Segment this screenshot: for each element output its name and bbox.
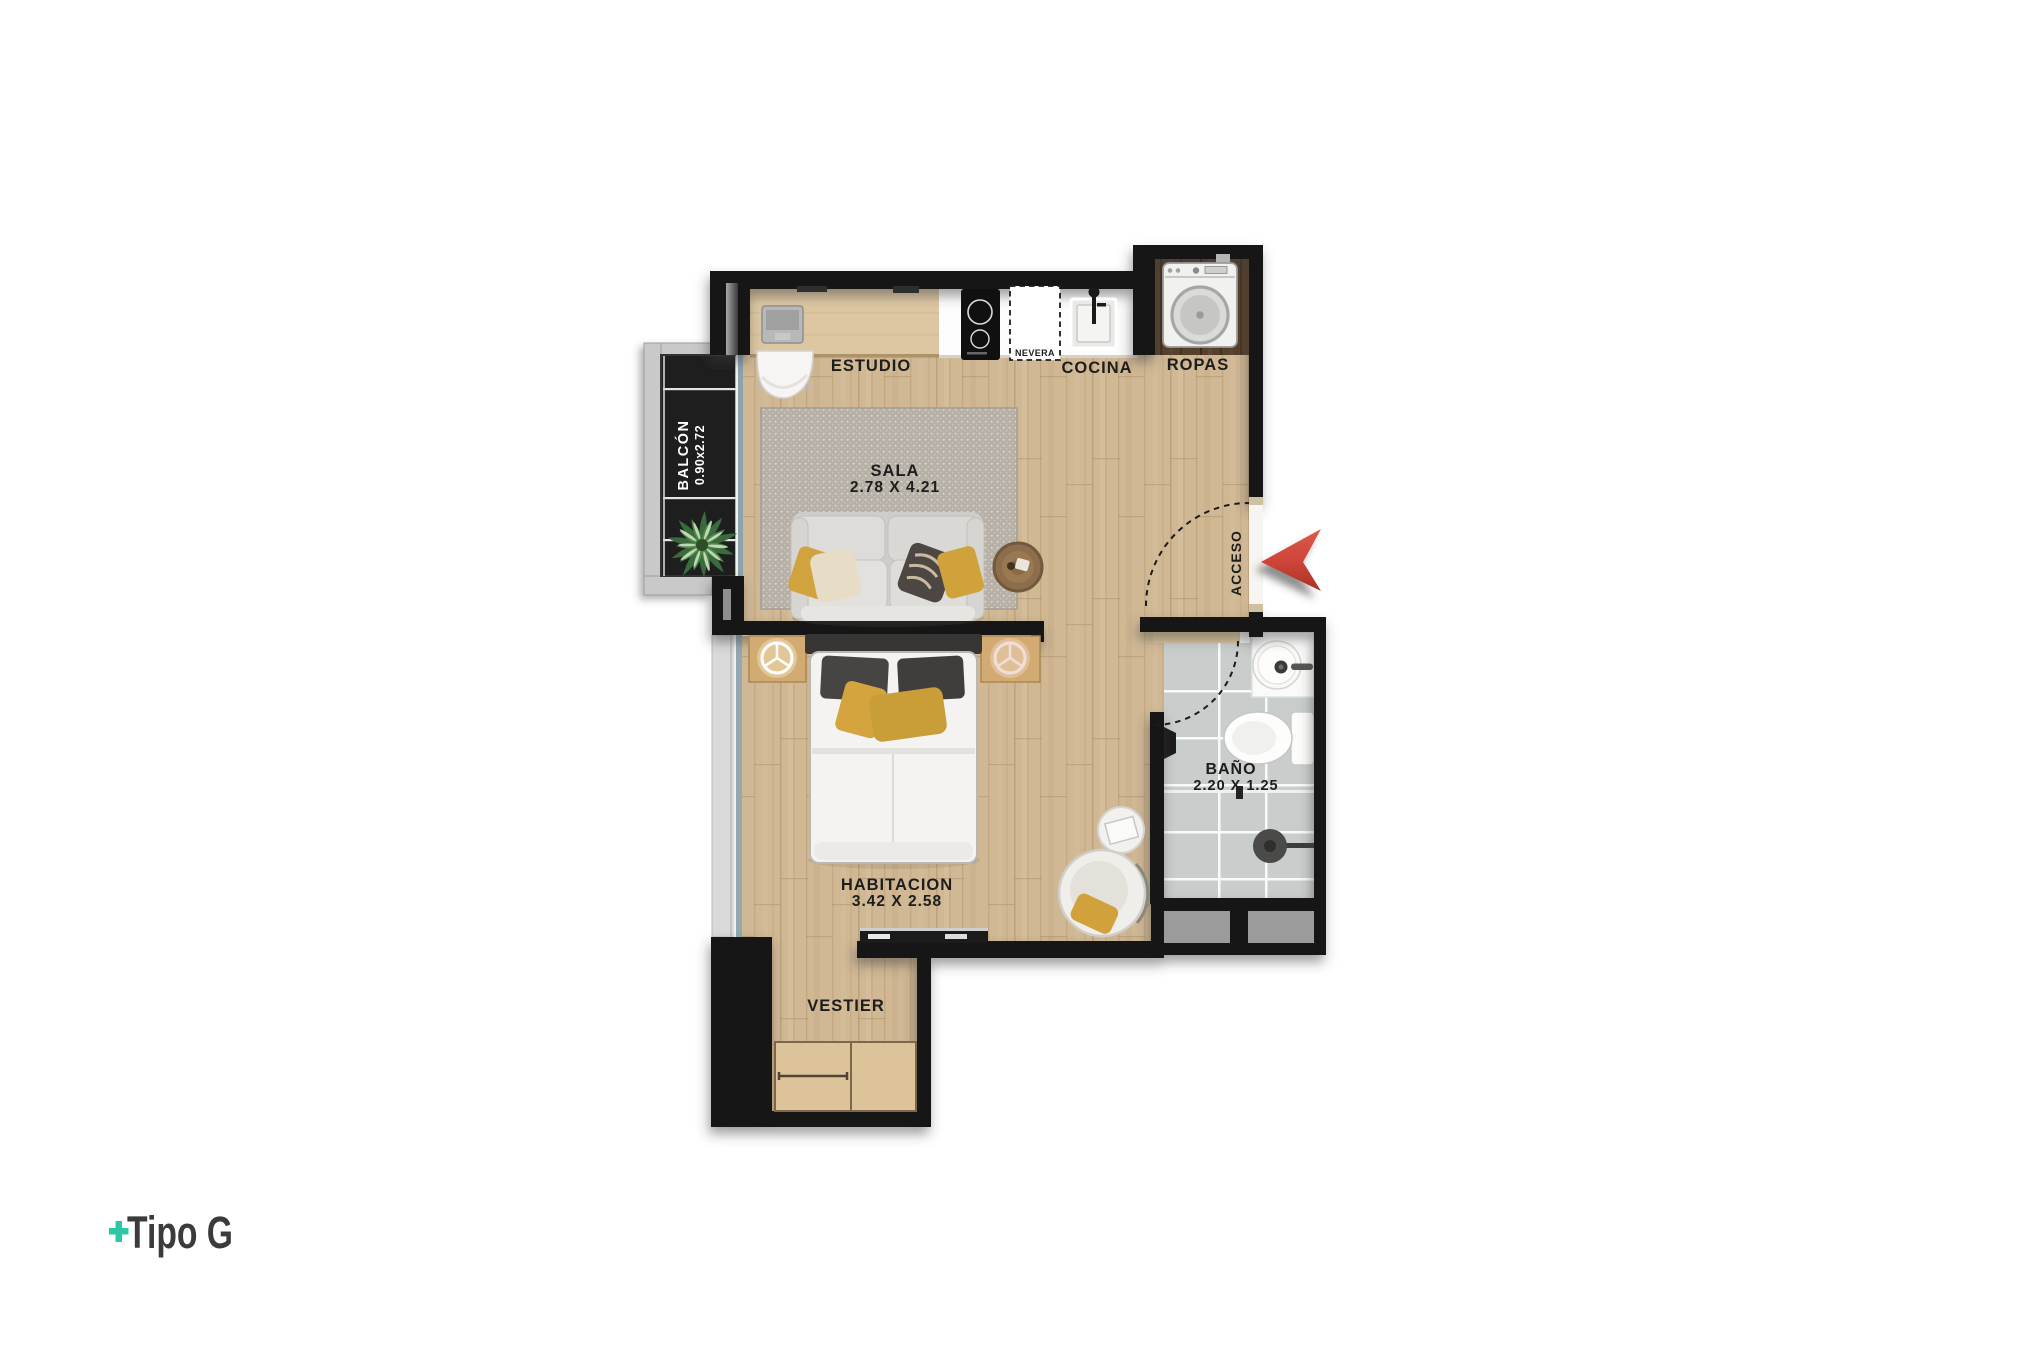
svg-text:2.20 X 1.25: 2.20 X 1.25 xyxy=(1193,778,1278,794)
svg-text:HABITACION: HABITACION xyxy=(841,876,953,894)
svg-text:ROPAS: ROPAS xyxy=(1167,356,1229,374)
svg-text:0.90x2.72: 0.90x2.72 xyxy=(693,425,707,485)
svg-text:BALCÓN: BALCÓN xyxy=(674,419,692,490)
svg-text:3.42 X 2.58: 3.42 X 2.58 xyxy=(852,893,942,910)
svg-text:VESTIER: VESTIER xyxy=(807,997,885,1015)
svg-text:COCINA: COCINA xyxy=(1061,359,1132,377)
svg-text:BAÑO: BAÑO xyxy=(1205,758,1256,778)
svg-text:SALA: SALA xyxy=(871,462,920,480)
svg-text:ACCESO: ACCESO xyxy=(1228,530,1244,596)
svg-text:ESTUDIO: ESTUDIO xyxy=(831,357,911,375)
svg-text:2.78 X 4.21: 2.78 X 4.21 xyxy=(850,479,940,496)
svg-text:Tipo G: Tipo G xyxy=(127,1207,233,1258)
svg-text:NEVERA: NEVERA xyxy=(1015,348,1055,358)
